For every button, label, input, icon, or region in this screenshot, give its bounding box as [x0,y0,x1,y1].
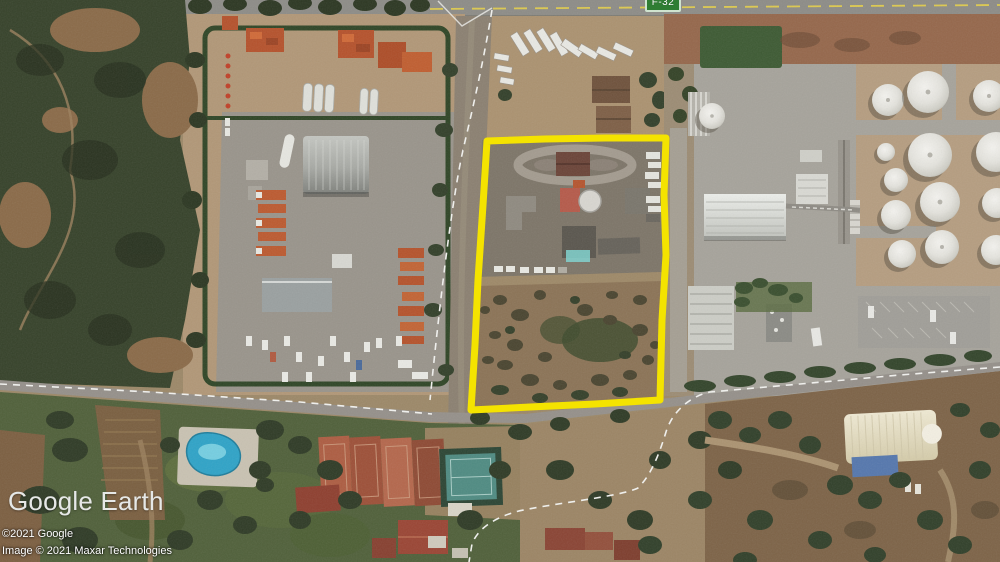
copyright-google: ©2021 Google [2,528,73,540]
satellite-imagery [0,0,1000,562]
google-earth-logo: Google Earth [8,486,164,517]
copyright-maxar: Image © 2021 Maxar Technologies [2,545,172,557]
image-grain [0,0,1000,562]
road-label-badge: F-32 [645,0,681,12]
map-canvas[interactable]: F-32 Google Earth ©2021 Google Image © 2… [0,0,1000,562]
